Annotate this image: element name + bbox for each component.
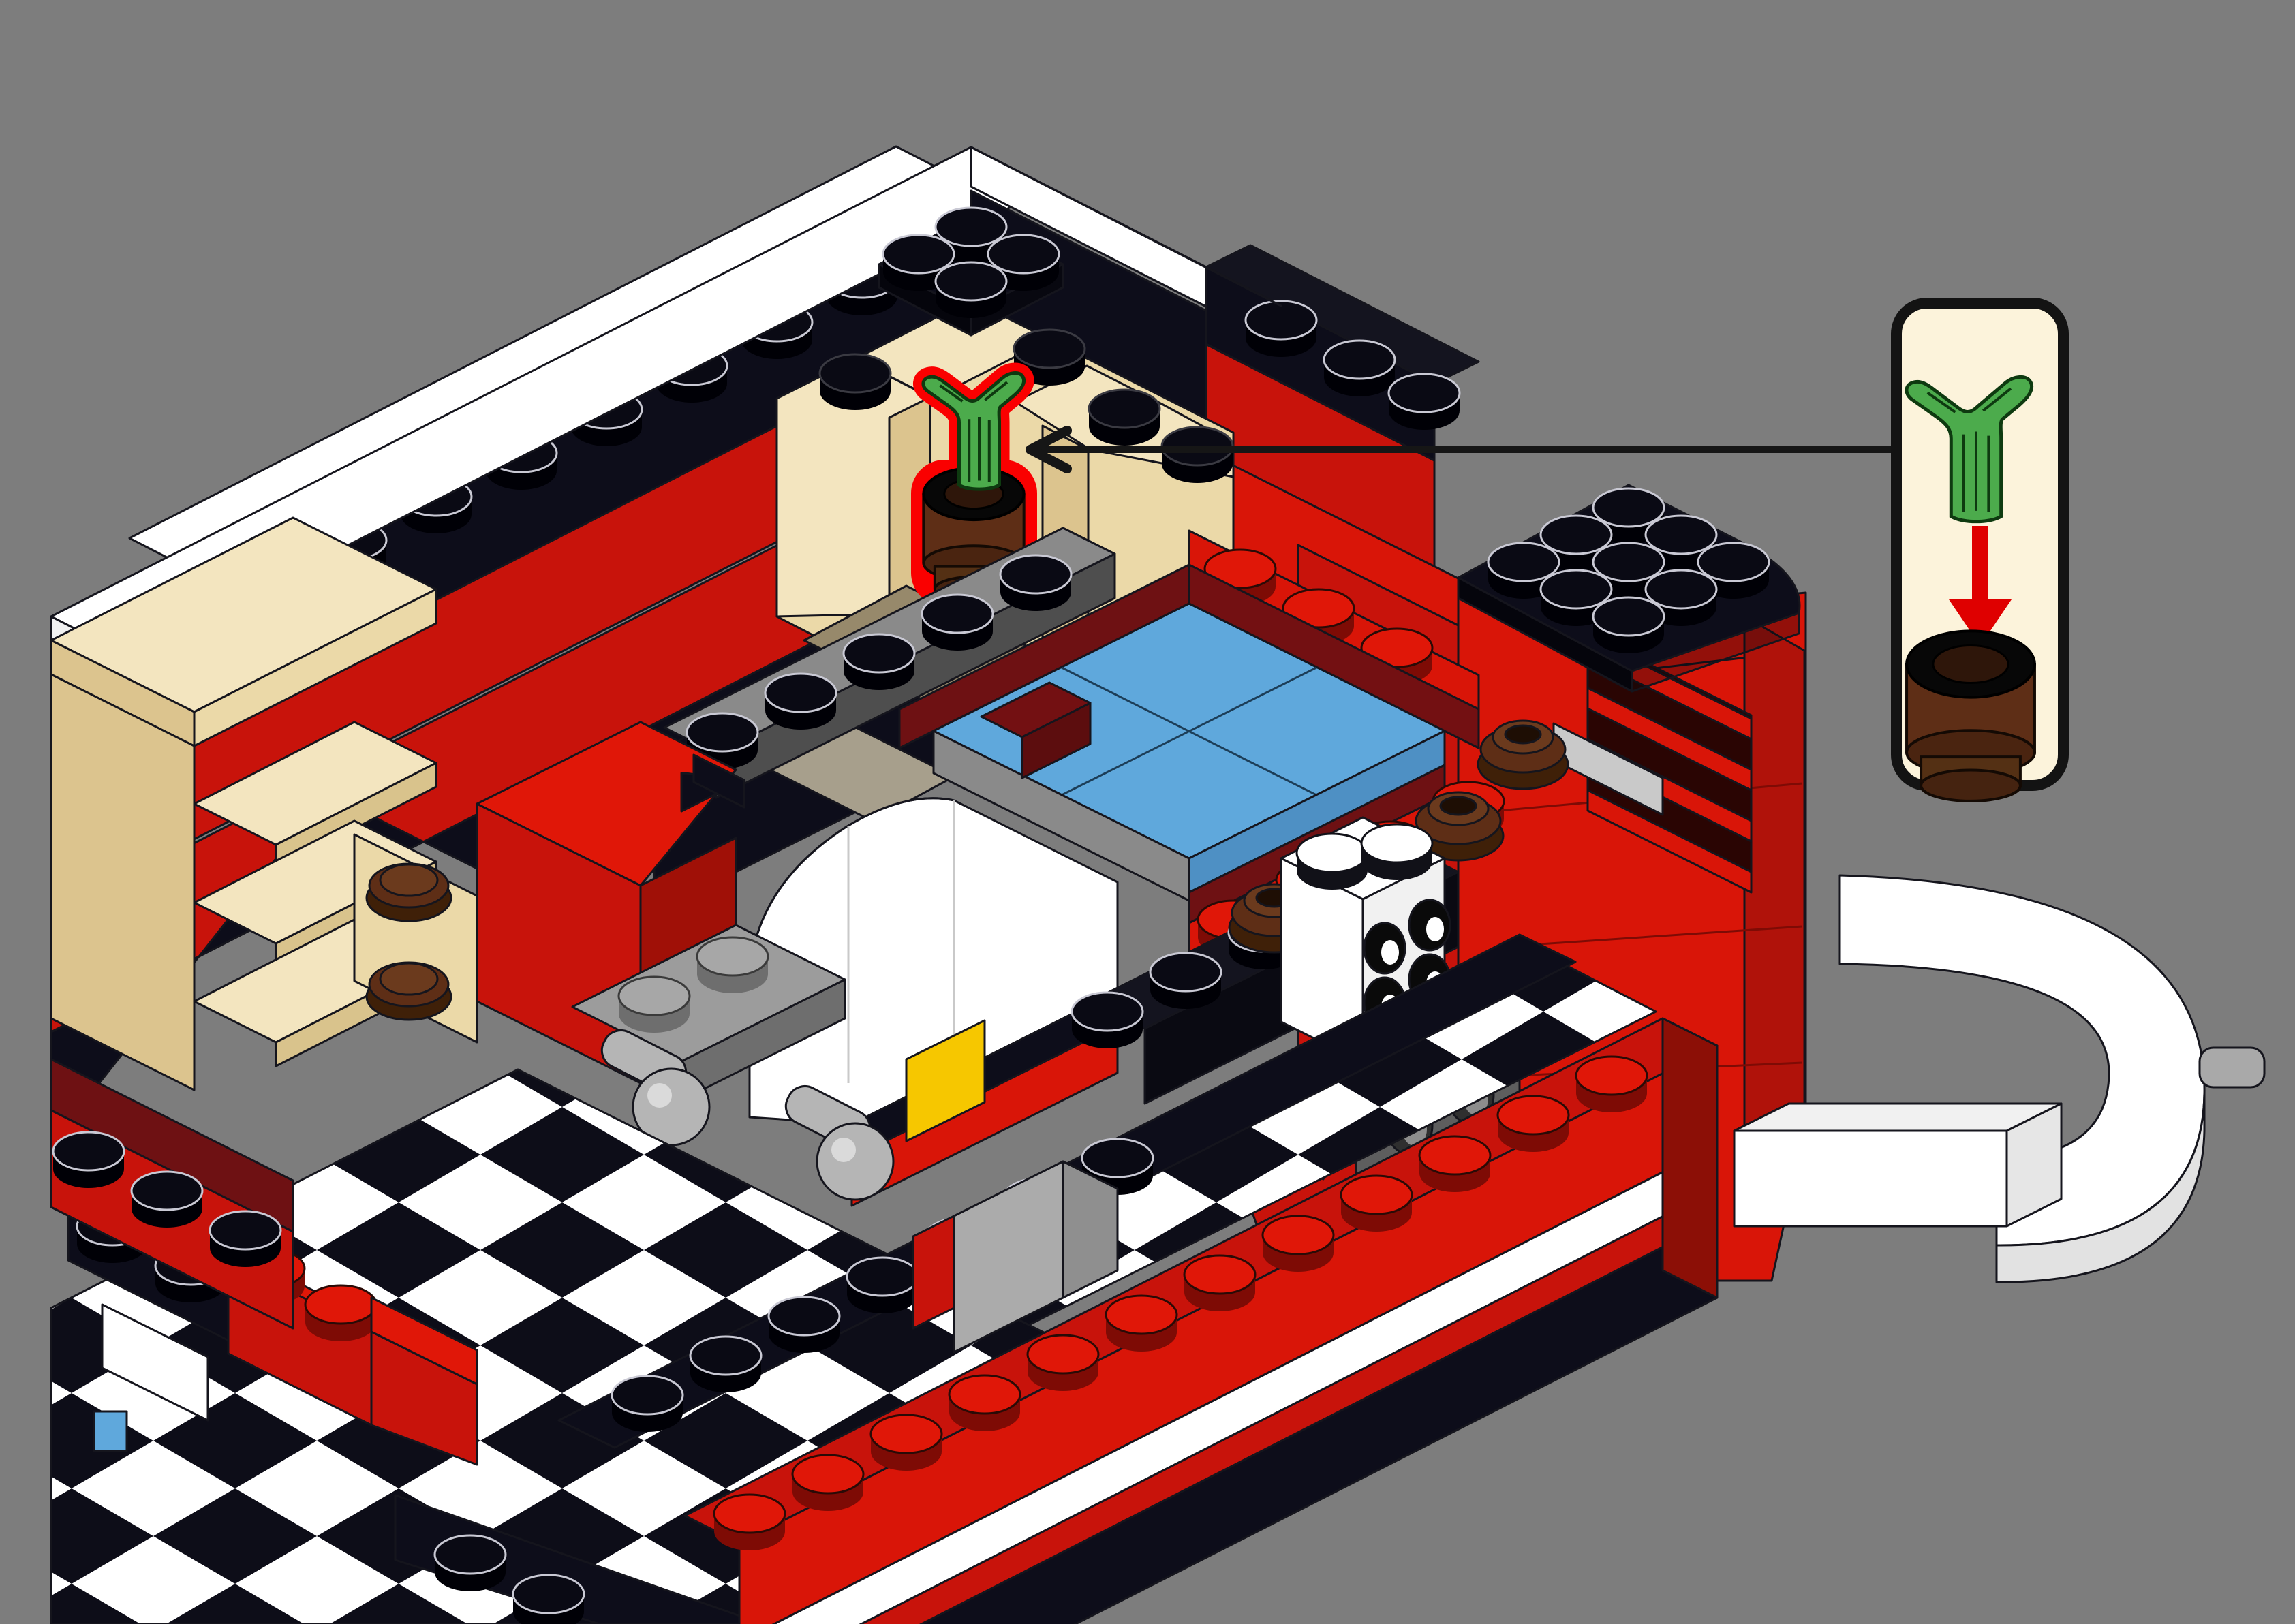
callout-round-brick (1907, 631, 2035, 800)
callout (1896, 303, 2063, 801)
gray-bar (2200, 1048, 2264, 1087)
stove-knob (367, 963, 451, 1020)
instruction-page (0, 0, 2295, 1624)
white-brick (1734, 1131, 2007, 1226)
stove-knob (367, 864, 451, 921)
